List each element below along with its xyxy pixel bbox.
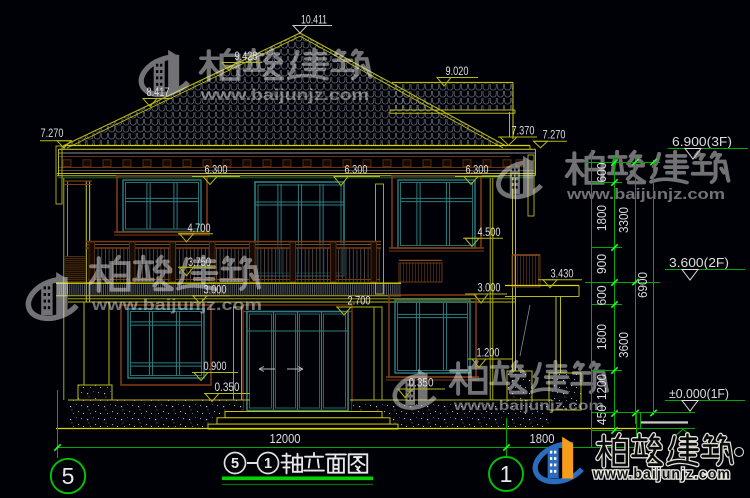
svg-text:12000: 12000 (270, 431, 301, 446)
svg-text:6900: 6900 (635, 272, 650, 298)
svg-text:9.020: 9.020 (446, 64, 469, 78)
svg-text:450: 450 (594, 405, 609, 425)
svg-text:www.baijunjz.com: www.baijunjz.com (592, 467, 731, 483)
svg-text:±0.000(1F): ±0.000(1F) (669, 386, 729, 401)
svg-text:7.270: 7.270 (543, 128, 566, 142)
svg-text:3300: 3300 (616, 207, 631, 233)
svg-text:4.700: 4.700 (188, 221, 211, 235)
svg-text:4.500: 4.500 (478, 225, 501, 239)
svg-text:5: 5 (231, 456, 239, 472)
svg-text:1: 1 (264, 456, 272, 472)
svg-text:7.270: 7.270 (41, 126, 64, 140)
svg-text:6.300: 6.300 (205, 163, 228, 177)
svg-text:600: 600 (594, 163, 609, 183)
svg-text:www.baijunjz.com: www.baijunjz.com (453, 398, 604, 413)
svg-text:1.200: 1.200 (477, 346, 500, 360)
svg-text:900: 900 (594, 254, 609, 274)
svg-text:0.900: 0.900 (204, 359, 227, 373)
svg-text:7.370: 7.370 (512, 124, 535, 138)
svg-text:6.900(3F): 6.900(3F) (672, 134, 732, 149)
svg-text:3.430: 3.430 (551, 267, 574, 281)
svg-text:3.000: 3.000 (478, 281, 501, 295)
svg-text:8.417: 8.417 (147, 85, 170, 99)
svg-text:0.350: 0.350 (409, 376, 434, 390)
svg-text:9.428: 9.428 (235, 49, 258, 63)
svg-text:www.baijunjz.com: www.baijunjz.com (566, 187, 725, 203)
svg-text:1200: 1200 (594, 374, 609, 400)
svg-text:www.baijunjz.com: www.baijunjz.com (91, 297, 262, 314)
svg-text:10.411: 10.411 (301, 13, 327, 27)
svg-text:2.700: 2.700 (348, 294, 371, 308)
svg-text:www.baijunjz.com: www.baijunjz.com (200, 87, 369, 104)
svg-text:5: 5 (62, 463, 75, 489)
svg-text:1800: 1800 (530, 431, 555, 446)
svg-text:600: 600 (594, 286, 609, 306)
svg-text:6.300: 6.300 (345, 163, 368, 177)
svg-text:1800: 1800 (594, 324, 609, 350)
svg-text:1: 1 (500, 461, 513, 487)
svg-text:3.600(2F): 3.600(2F) (669, 255, 729, 270)
svg-text:0.350: 0.350 (215, 380, 240, 394)
svg-text:1800: 1800 (594, 205, 609, 231)
svg-text:3600: 3600 (616, 332, 631, 358)
svg-text:6.300: 6.300 (466, 163, 489, 177)
svg-text:3.000: 3.000 (204, 283, 227, 297)
